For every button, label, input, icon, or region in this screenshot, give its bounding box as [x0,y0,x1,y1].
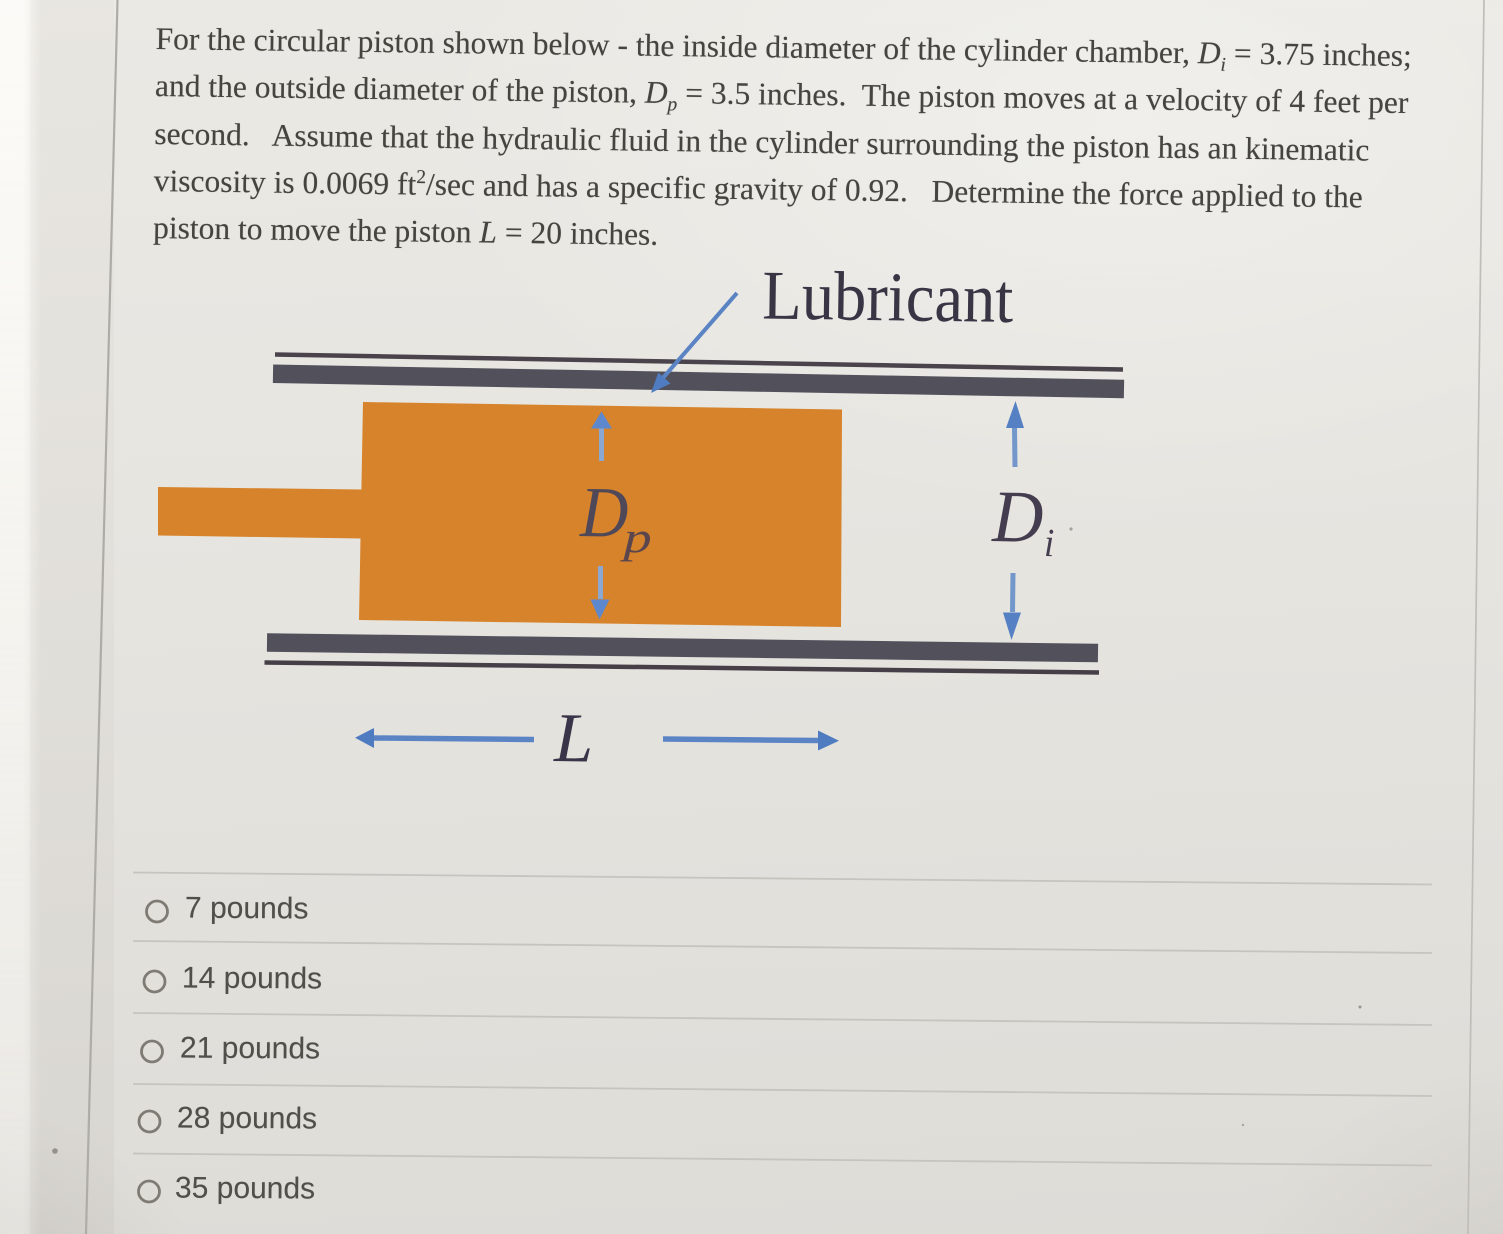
svg-text:p: p [620,513,652,562]
svg-text:L: L [553,700,594,778]
svg-text:D: D [991,476,1044,559]
svg-text:D: D [579,472,629,553]
svg-text:i: i [1044,520,1055,565]
svg-text:Lubricant: Lubricant [762,258,1015,339]
